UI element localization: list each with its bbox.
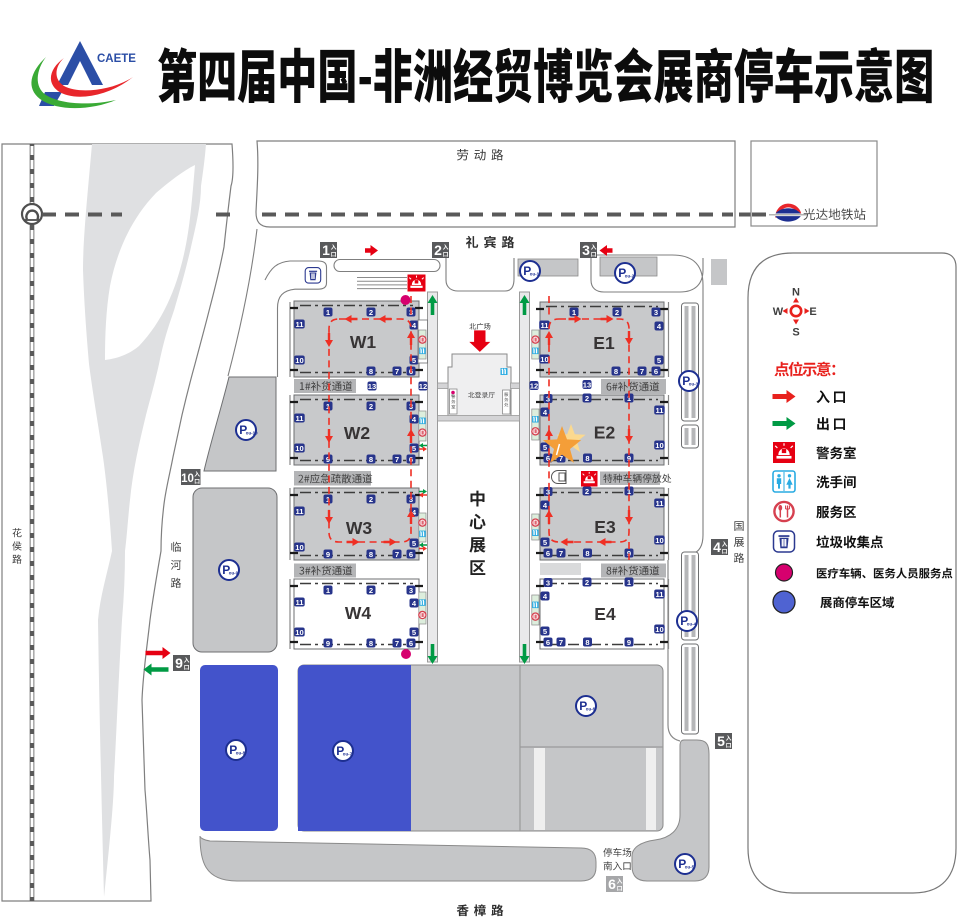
svg-text:11: 11 <box>295 414 304 423</box>
svg-text:8: 8 <box>614 367 618 376</box>
svg-text:CAETE: CAETE <box>97 53 136 65</box>
svg-text:2: 2 <box>615 308 619 317</box>
svg-text:10: 10 <box>655 441 663 450</box>
svg-text:W1: W1 <box>350 332 377 352</box>
svg-text:2: 2 <box>369 308 373 317</box>
svg-text:W4: W4 <box>345 603 372 623</box>
svg-text:2: 2 <box>585 394 589 403</box>
svg-text:11: 11 <box>540 321 549 330</box>
svg-text:11: 11 <box>655 590 664 599</box>
svg-text:6: 6 <box>409 550 413 559</box>
svg-text:9: 9 <box>326 550 330 559</box>
svg-text:8: 8 <box>369 550 373 559</box>
svg-text:5: 5 <box>717 733 725 749</box>
svg-text:11: 11 <box>295 598 304 607</box>
svg-text:6: 6 <box>546 638 550 647</box>
svg-text:11: 11 <box>655 499 664 508</box>
svg-text:9: 9 <box>175 655 183 671</box>
svg-text:8: 8 <box>369 367 373 376</box>
svg-text:E: E <box>809 306 816 318</box>
svg-text:7: 7 <box>640 367 644 376</box>
svg-text:1: 1 <box>322 242 330 258</box>
svg-text:ou-3: ou-3 <box>689 381 699 386</box>
svg-text:13: 13 <box>368 382 376 391</box>
svg-text:7: 7 <box>395 455 399 464</box>
svg-text:6: 6 <box>654 367 658 376</box>
svg-text:12: 12 <box>530 382 538 391</box>
svg-text:10: 10 <box>295 628 303 637</box>
svg-text:W2: W2 <box>344 423 371 443</box>
svg-text:3: 3 <box>409 586 413 595</box>
svg-text:11: 11 <box>295 507 304 516</box>
svg-text:2: 2 <box>369 586 373 595</box>
svg-text:4: 4 <box>713 539 721 555</box>
svg-text:3: 3 <box>654 308 658 317</box>
svg-text:ou-7: ou-7 <box>343 751 353 756</box>
svg-text:E4: E4 <box>594 604 616 624</box>
svg-text:E2: E2 <box>594 423 616 443</box>
svg-text:7: 7 <box>395 639 399 648</box>
svg-text:3: 3 <box>546 579 550 588</box>
svg-text:2: 2 <box>369 402 373 411</box>
svg-text:E3: E3 <box>594 517 616 537</box>
svg-text:7: 7 <box>395 367 399 376</box>
svg-text:ou-6: ou-6 <box>586 706 596 711</box>
svg-text:6: 6 <box>608 876 616 892</box>
svg-text:10: 10 <box>655 625 663 634</box>
svg-text:8: 8 <box>585 454 589 463</box>
svg-text:ou-5: ou-5 <box>685 864 695 869</box>
svg-text:ou-8: ou-8 <box>236 750 246 755</box>
svg-text:9: 9 <box>627 638 631 647</box>
svg-text:ou-10: ou-10 <box>246 430 258 435</box>
svg-text:8: 8 <box>585 549 589 558</box>
svg-text:10: 10 <box>655 536 663 545</box>
svg-text:3: 3 <box>582 242 590 258</box>
svg-text:7: 7 <box>559 549 563 558</box>
svg-text:10: 10 <box>295 356 303 365</box>
svg-text:10: 10 <box>295 543 303 552</box>
svg-text:10: 10 <box>181 473 194 485</box>
svg-text:N: N <box>792 287 800 299</box>
svg-text:6: 6 <box>546 549 550 558</box>
svg-text:2: 2 <box>585 487 589 496</box>
svg-text:11: 11 <box>655 406 664 415</box>
svg-text:ou-9: ou-9 <box>229 570 239 575</box>
svg-text:S: S <box>792 327 799 339</box>
svg-text:7: 7 <box>395 550 399 559</box>
svg-text:2: 2 <box>585 578 589 587</box>
svg-text:6: 6 <box>409 639 413 648</box>
svg-text:W3: W3 <box>346 518 373 538</box>
svg-text:10: 10 <box>295 444 303 453</box>
svg-text:13: 13 <box>583 381 591 390</box>
svg-text:9: 9 <box>326 639 330 648</box>
svg-text:W: W <box>773 306 784 318</box>
svg-text:ou-1: ou-1 <box>530 271 540 276</box>
svg-text:ou-2: ou-2 <box>625 273 635 278</box>
svg-text:8: 8 <box>369 455 373 464</box>
svg-text:10: 10 <box>540 355 548 364</box>
svg-text:8: 8 <box>369 639 373 648</box>
svg-text:2: 2 <box>369 495 373 504</box>
svg-text:11: 11 <box>295 320 304 329</box>
svg-text:ou-4: ou-4 <box>687 621 697 626</box>
svg-text:2: 2 <box>434 242 442 258</box>
svg-text:E1: E1 <box>593 333 615 353</box>
svg-text:12: 12 <box>419 382 427 391</box>
svg-text:7: 7 <box>559 638 563 647</box>
svg-text:8: 8 <box>585 638 589 647</box>
